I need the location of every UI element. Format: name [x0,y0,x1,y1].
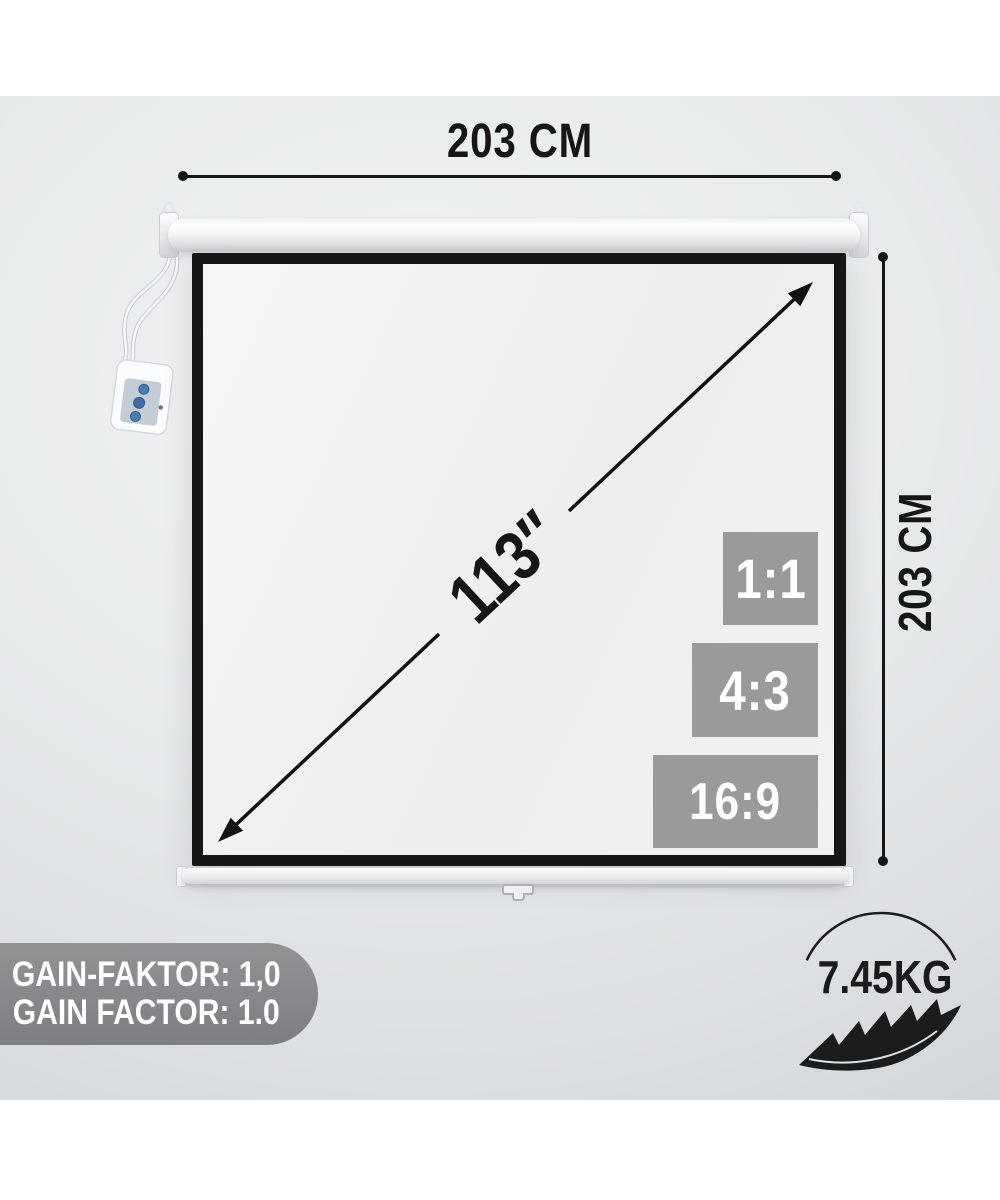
aspect-ratio-badge-1-1: 1:1 [723,532,818,625]
aspect-ratio-label: 1:1 [735,546,806,611]
width-dimension-label: 203 CM [352,118,688,166]
gain-factor-badge: GAIN-FAKTOR: 1,0 GAIN FACTOR: 1.0 [0,943,318,1045]
product-infographic: 203 CM 113″ [0,0,1000,1200]
remote-body [110,359,174,435]
weight-label: 7.45KG [809,954,962,1000]
height-dimension-endpoint-top [878,252,888,262]
aspect-ratio-label: 16:9 [690,772,782,832]
weight-bar [182,868,848,884]
roller-tube [168,218,860,252]
power-cord-icon [124,256,177,366]
gain-factor-line-en: GAIN FACTOR: 1.0 [12,994,279,1032]
remote-control [70,250,190,440]
aspect-ratio-label: 4:3 [719,658,790,723]
aspect-ratio-badge-4-3: 4:3 [692,643,818,737]
gain-factor-line-de: GAIN-FAKTOR: 1,0 [12,956,281,994]
feather-icon [799,999,961,1071]
width-dimension-endpoint-left [178,171,188,181]
height-dimension-line [882,257,885,861]
width-dimension-endpoint-right [831,171,841,181]
height-dimension-label: 203 CM [892,394,938,730]
aspect-ratio-badge-16-9: 16:9 [653,755,818,848]
height-dimension-endpoint-bottom [878,856,888,866]
width-dimension-line [183,175,836,178]
pull-handle-tab [512,893,525,901]
